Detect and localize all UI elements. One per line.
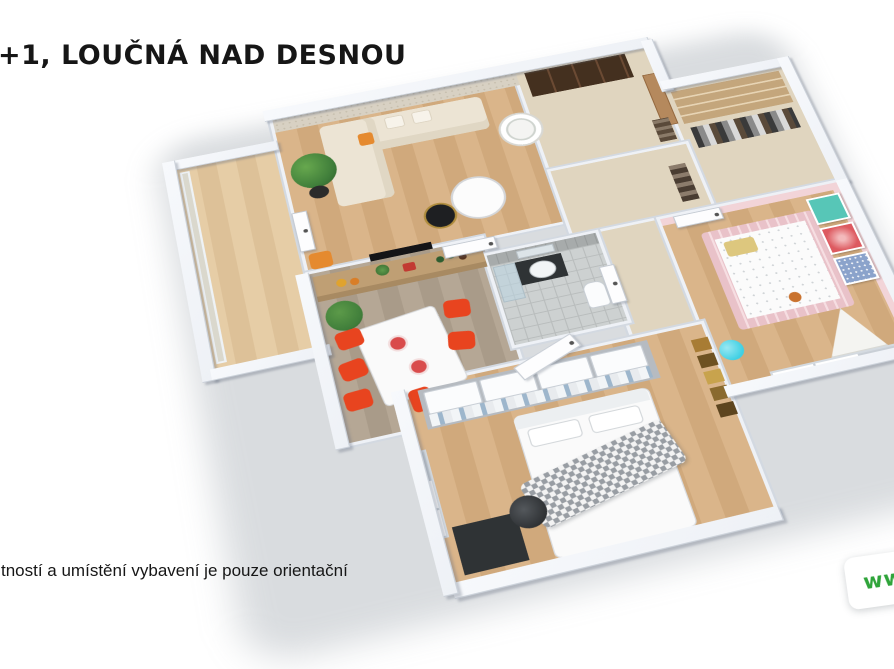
red-chair bbox=[448, 330, 476, 350]
disclaimer-text: tností a umístění vybavení je pouze orie… bbox=[1, 561, 348, 581]
watermark-card: www bbox=[843, 544, 894, 611]
watermark-text: www bbox=[845, 562, 894, 597]
page-title: +1, LOUČNÁ NAD DESNOU bbox=[0, 40, 406, 71]
floorplan-page: { "title": { "text": "+1, LOUČNÁ NAD DES… bbox=[0, 0, 894, 625]
red-chair bbox=[442, 298, 471, 319]
floorplan-render bbox=[171, 24, 894, 633]
